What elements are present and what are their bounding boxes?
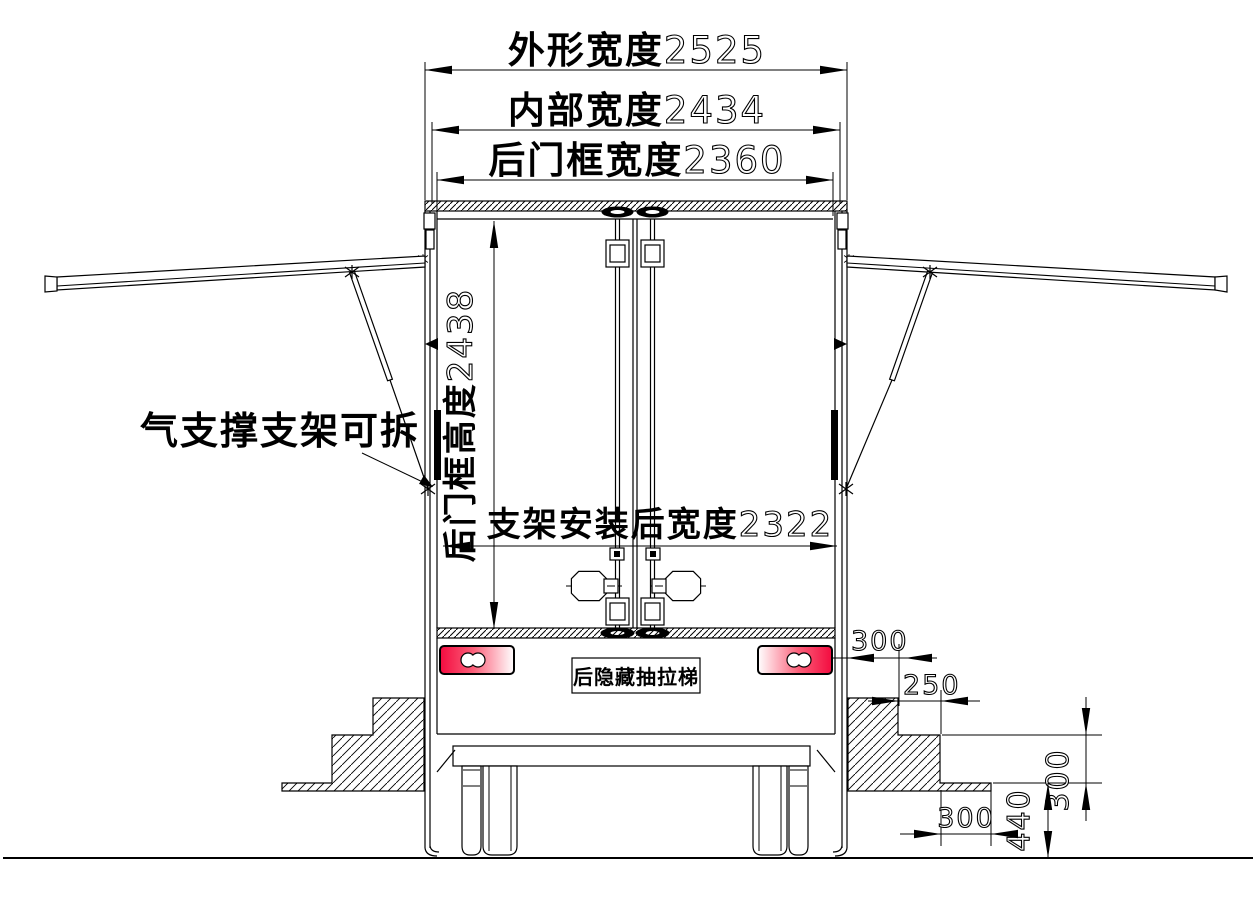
dim-door-frame-height-text: 后门框高度2438 <box>441 288 481 563</box>
dim-ground-clearance-text: 440 <box>1002 788 1037 851</box>
sill-strip <box>437 628 835 638</box>
cross-member <box>453 746 810 766</box>
gas-strut-note-text: 气支撑支架可拆 <box>140 409 420 453</box>
dim-step-depth-text: 250 <box>903 670 961 701</box>
ladder-label: 后隐藏抽拉梯 <box>572 658 700 693</box>
dim-outer-width-text: 外形宽度2525 <box>508 29 766 72</box>
roof-edge-strip <box>425 201 847 211</box>
door-end-cap-left <box>45 276 57 292</box>
cad-canvas: 外形宽度2525 内部宽度2434 后门框宽度2360 <box>0 0 1256 917</box>
dim-door-frame-width-text: 后门框宽度2360 <box>488 139 785 182</box>
dim-step-width-text: 300 <box>937 803 995 834</box>
taillight-left <box>440 646 514 674</box>
dim-inner-width-text: 内部宽度2434 <box>508 89 766 132</box>
wheels-left <box>462 766 517 855</box>
truck-rear-view-drawing: 外形宽度2525 内部宽度2434 后门框宽度2360 <box>0 0 1256 917</box>
dim-taillight-offset-text: 300 <box>851 626 909 657</box>
wheels-right <box>753 766 808 855</box>
ladder-label-text: 后隐藏抽拉梯 <box>573 665 699 689</box>
dim-bracket-width-text: 支架安装后宽度2322 <box>487 505 834 545</box>
strut-mount-rail-right <box>831 410 838 480</box>
dimension-bracket-width: 支架安装后宽度2322 <box>443 505 837 550</box>
door-end-cap-right <box>1215 276 1227 292</box>
strut-mount-rail-left <box>434 410 441 480</box>
taillight-right <box>758 646 832 674</box>
